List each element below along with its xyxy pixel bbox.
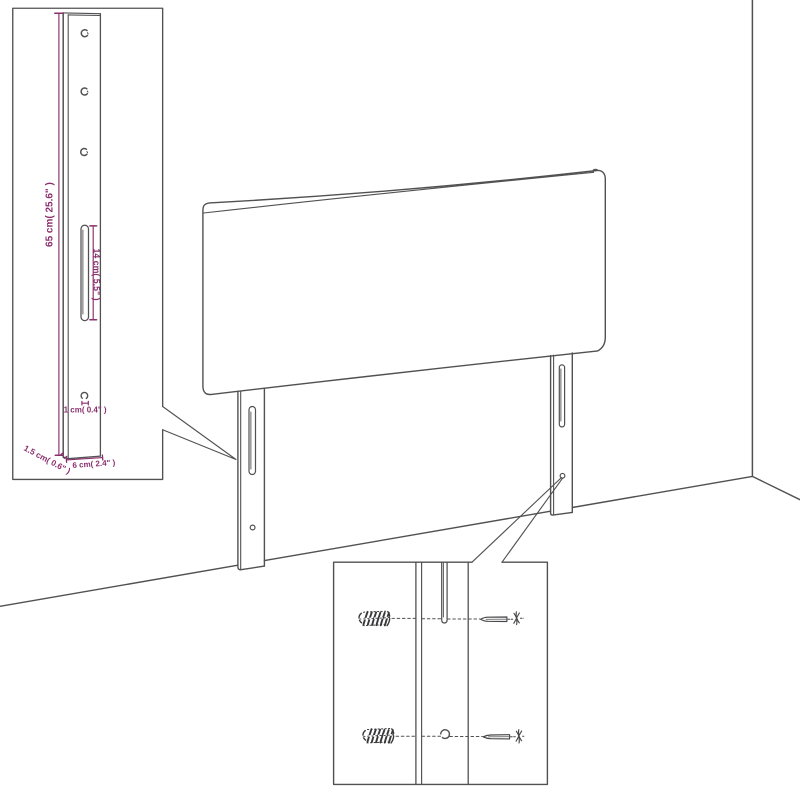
svg-text:1 cm( 0.4" ): 1 cm( 0.4" ) [64,405,107,414]
svg-text:1.5 cm( 0.6" ): 1.5 cm( 0.6" ) [22,443,72,476]
svg-text:6 cm( 2.4" ): 6 cm( 2.4" ) [72,458,116,470]
svg-text:65 cm( 25.6" ): 65 cm( 25.6" ) [44,182,55,247]
svg-text:14 cm( 5.5" ): 14 cm( 5.5" ) [92,248,102,300]
